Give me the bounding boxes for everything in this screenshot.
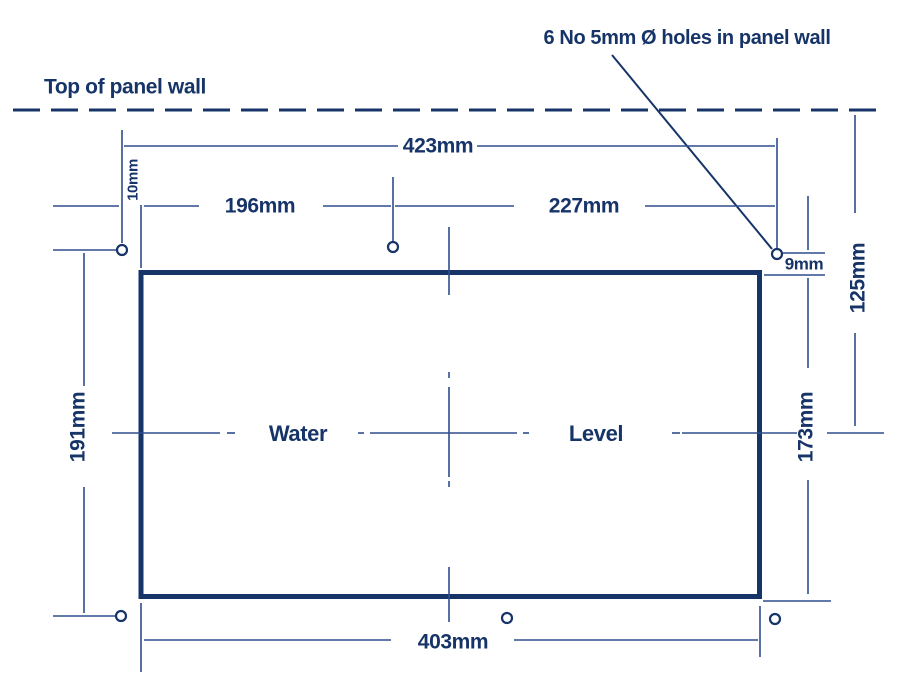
- dim-label-9: 9mm: [785, 256, 824, 273]
- hole-top-right: [772, 249, 782, 259]
- extension-lines: [53, 130, 831, 672]
- holes-note-label: 6 No 5mm Ø holes in panel wall: [544, 28, 831, 48]
- cutout-rectangle: [141, 273, 760, 597]
- dim-label-196: 196mm: [225, 196, 295, 217]
- dim-label-403: 403mm: [418, 632, 488, 653]
- hole-top-left: [117, 245, 127, 255]
- hole-top-centre: [388, 242, 398, 252]
- hole-bottom-centre: [502, 613, 512, 623]
- hole-bottom-left: [116, 611, 126, 621]
- dimension-lines: [53, 115, 855, 640]
- panel-word-water: Water: [269, 423, 327, 445]
- dim-label-10: 10mm: [126, 159, 141, 201]
- dim-label-423: 423mm: [403, 136, 473, 157]
- wall-top-label: Top of panel wall: [44, 77, 206, 98]
- dim-label-191: 191mm: [68, 392, 89, 462]
- diagram-linework: [0, 0, 901, 690]
- panel-word-level: Level: [569, 423, 623, 445]
- dim-label-173: 173mm: [796, 392, 817, 462]
- centre-lines: [112, 227, 884, 622]
- dim-label-227: 227mm: [549, 196, 619, 217]
- hole-bottom-right: [770, 614, 780, 624]
- dim-label-125: 125mm: [848, 243, 869, 313]
- holes-note-leader-line: [612, 55, 772, 249]
- panel-cutout-diagram: 6 No 5mm Ø holes in panel wall Top of pa…: [0, 0, 901, 690]
